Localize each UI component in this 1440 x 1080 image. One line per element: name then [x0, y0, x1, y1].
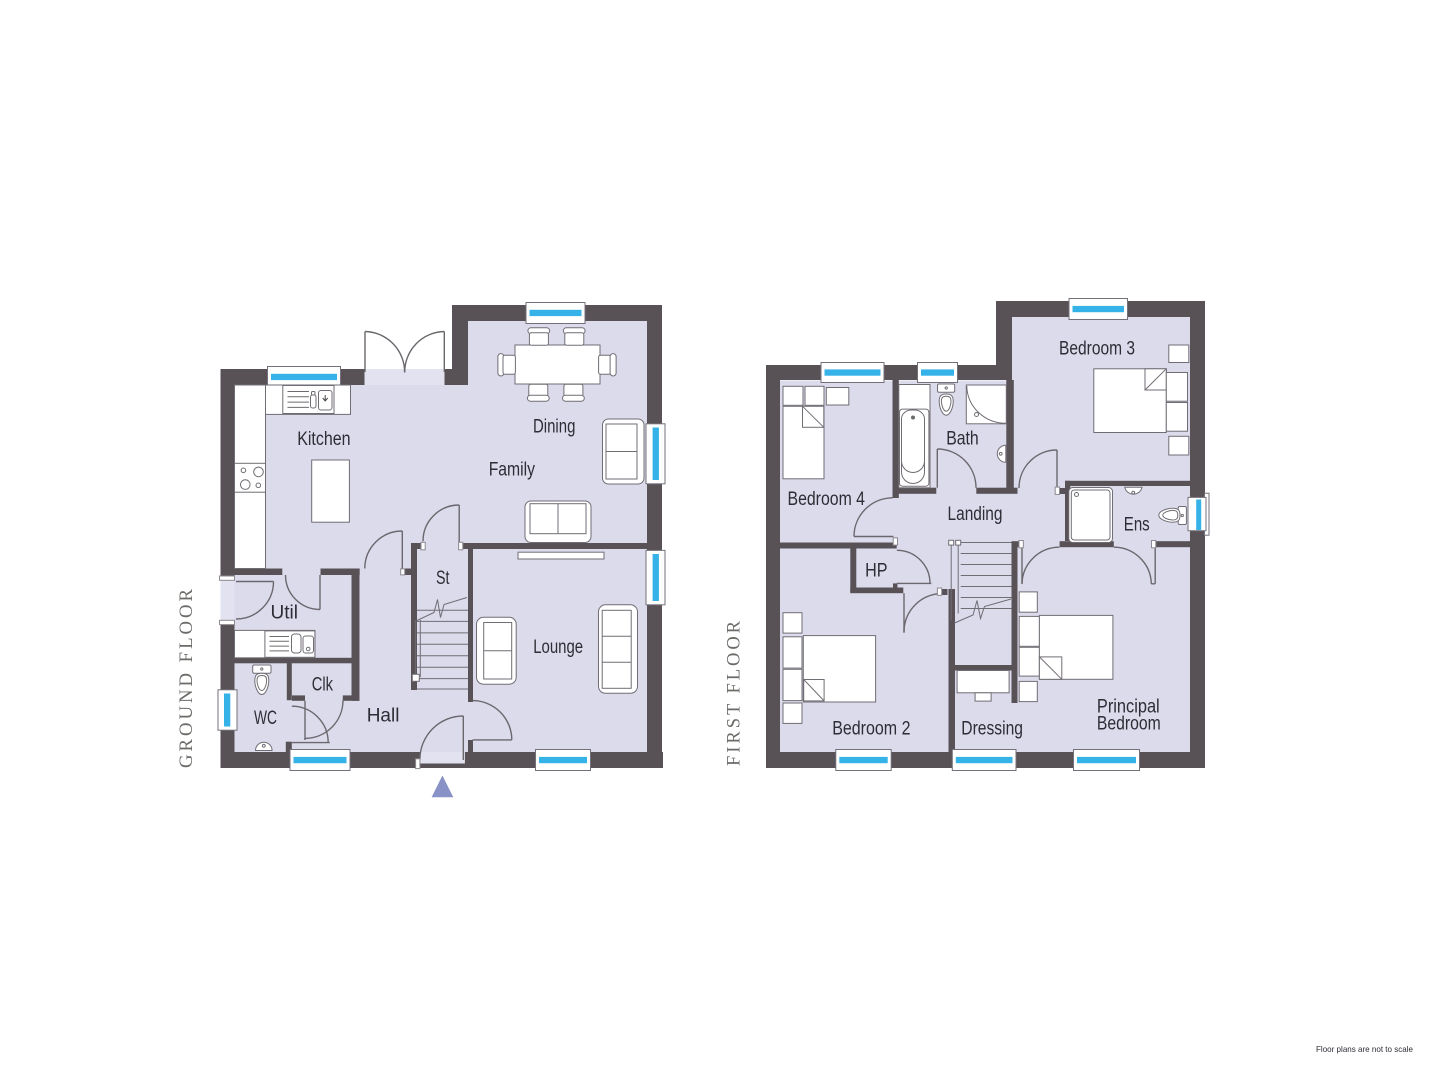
svg-text:Bedroom 3: Bedroom 3 — [1059, 339, 1135, 360]
svg-text:Hall: Hall — [367, 706, 400, 727]
svg-text:Bedroom 2: Bedroom 2 — [832, 718, 910, 739]
svg-text:Bath: Bath — [946, 429, 979, 450]
svg-text:Dining: Dining — [533, 416, 575, 437]
svg-text:Clk: Clk — [312, 674, 334, 695]
svg-text:FIRST FLOOR: FIRST FLOOR — [724, 618, 745, 766]
svg-text:HP: HP — [865, 560, 887, 581]
svg-text:Landing: Landing — [948, 504, 1003, 525]
svg-text:Family: Family — [489, 459, 536, 480]
svg-text:Bedroom 4: Bedroom 4 — [788, 489, 866, 510]
svg-text:GROUND FLOOR: GROUND FLOOR — [176, 586, 197, 768]
svg-text:Kitchen: Kitchen — [297, 429, 350, 450]
svg-text:WC: WC — [254, 708, 277, 729]
svg-text:Dressing: Dressing — [961, 718, 1023, 739]
svg-text:Util: Util — [271, 602, 298, 623]
svg-text:St: St — [436, 568, 450, 589]
svg-text:Bedroom: Bedroom — [1097, 713, 1161, 734]
svg-text:Ens: Ens — [1124, 515, 1150, 536]
svg-text:Floor plans are not to scale: Floor plans are not to scale — [1316, 1044, 1413, 1054]
svg-text:Lounge: Lounge — [533, 637, 583, 658]
